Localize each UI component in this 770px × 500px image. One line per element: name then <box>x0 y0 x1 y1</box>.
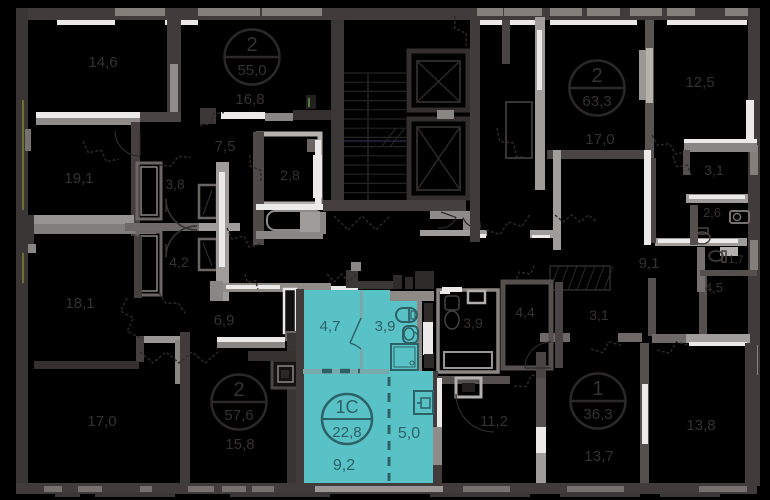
svg-text:2,6: 2,6 <box>703 205 721 220</box>
svg-text:4,5: 4,5 <box>705 280 723 295</box>
svg-text:16,8: 16,8 <box>235 91 264 108</box>
svg-text:15,8: 15,8 <box>225 436 254 453</box>
svg-text:2: 2 <box>591 65 602 87</box>
svg-text:5,0: 5,0 <box>398 425 420 442</box>
svg-text:3,8: 3,8 <box>165 176 185 192</box>
svg-text:2,8: 2,8 <box>280 167 300 183</box>
svg-text:36,3: 36,3 <box>583 406 612 423</box>
svg-text:22,8: 22,8 <box>332 424 361 441</box>
svg-text:9,2: 9,2 <box>333 457 355 474</box>
svg-text:11,2: 11,2 <box>480 413 508 430</box>
svg-text:17,0: 17,0 <box>585 131 614 148</box>
svg-text:13,7: 13,7 <box>584 448 613 465</box>
svg-text:57,6: 57,6 <box>224 407 253 424</box>
svg-text:3,9: 3,9 <box>375 318 396 335</box>
svg-text:14,6: 14,6 <box>88 54 117 71</box>
svg-text:1,7: 1,7 <box>728 254 743 266</box>
svg-text:3,9: 3,9 <box>463 315 483 331</box>
svg-text:7,5: 7,5 <box>215 138 236 155</box>
svg-text:4,4: 4,4 <box>515 304 535 320</box>
svg-text:4,2: 4,2 <box>169 254 189 270</box>
svg-text:3,1: 3,1 <box>589 307 609 323</box>
svg-text:4,7: 4,7 <box>320 318 341 335</box>
svg-text:17,0: 17,0 <box>87 413 116 430</box>
svg-text:19,1: 19,1 <box>64 170 93 187</box>
svg-text:6,9: 6,9 <box>214 312 235 329</box>
svg-text:63,3: 63,3 <box>582 93 611 110</box>
svg-text:9,1: 9,1 <box>639 255 660 272</box>
svg-text:55,0: 55,0 <box>237 62 266 79</box>
svg-text:2: 2 <box>233 379 244 401</box>
svg-text:3,1: 3,1 <box>704 162 724 178</box>
svg-text:18,1: 18,1 <box>65 295 94 312</box>
svg-text:1: 1 <box>592 378 603 400</box>
svg-text:2: 2 <box>246 34 257 56</box>
svg-text:1C: 1C <box>335 397 358 417</box>
svg-text:13,8: 13,8 <box>686 417 715 434</box>
svg-text:12,5: 12,5 <box>685 74 714 91</box>
